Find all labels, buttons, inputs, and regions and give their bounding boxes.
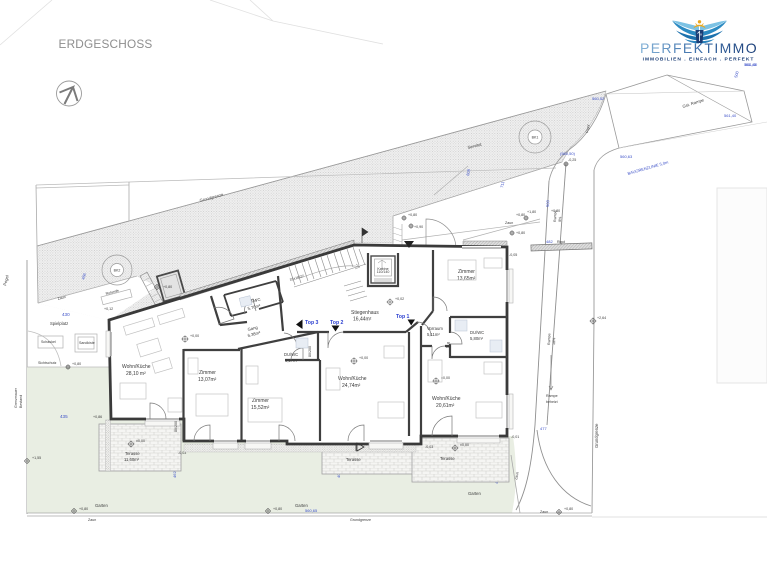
svg-text:561,40: 561,40 (724, 113, 737, 118)
svg-text:Top 3: Top 3 (305, 320, 319, 326)
svg-text:+0,12: +0,12 (104, 307, 113, 311)
svg-text:Vorraum: Vorraum (427, 326, 443, 331)
svg-text:Grenzmauer: Grenzmauer (14, 387, 18, 408)
svg-text:560,52: 560,52 (592, 96, 605, 101)
svg-text:+1,80: +1,80 (527, 210, 536, 214)
svg-text:Terasse: Terasse (346, 457, 361, 462)
svg-text:Schaukel: Schaukel (41, 340, 56, 344)
svg-text:Terasse: Terasse (125, 451, 140, 456)
svg-text:+0,02: +0,02 (395, 297, 404, 301)
svg-text:BK2: BK2 (114, 269, 121, 273)
svg-text:+0,80: +0,80 (516, 231, 525, 235)
svg-text:±0,00: ±0,00 (136, 439, 145, 443)
svg-text:IMMOBILIEN . EINFACH . PER: IMMOBILIEN . EINFACH . PERFEKT (643, 57, 755, 63)
svg-text:+0,80: +0,80 (72, 362, 81, 366)
svg-text:-0,05: -0,05 (509, 253, 517, 257)
svg-text:Sichtschutz: Sichtschutz (38, 361, 57, 365)
svg-text:561,40: 561,40 (744, 62, 757, 67)
svg-text:+1,55: +1,55 (32, 456, 41, 460)
svg-text:560,63: 560,63 (620, 154, 633, 159)
svg-text:+0,90: +0,90 (414, 225, 423, 229)
svg-text:Zaun: Zaun (505, 221, 513, 225)
svg-text:+0,86: +0,86 (93, 415, 102, 419)
svg-text:Rampe: Rampe (547, 333, 551, 345)
svg-text:Garten: Garten (95, 503, 108, 508)
svg-text:-0,03: -0,03 (425, 445, 433, 449)
svg-text:PERFEKTIMMO: PERFEKTIMMO (640, 40, 758, 56)
svg-text:+0,80: +0,80 (273, 507, 282, 511)
svg-text:Rigol: Rigol (557, 240, 565, 244)
svg-text:462: 462 (172, 471, 177, 478)
svg-text:-0,25: -0,25 (568, 158, 576, 162)
svg-text:Spielplatz: Spielplatz (50, 321, 68, 326)
svg-text:+2,64: +2,64 (597, 316, 606, 320)
svg-text:DU/WC: DU/WC (470, 330, 484, 335)
svg-text:5,11m²: 5,11m² (427, 332, 440, 337)
svg-text:+0,80: +0,80 (516, 213, 525, 217)
svg-text:500: 500 (545, 199, 550, 207)
svg-text:-0,01: -0,01 (511, 435, 519, 439)
svg-text:+0,00: +0,00 (359, 356, 368, 360)
svg-text:+0,80: +0,80 (551, 209, 560, 213)
svg-text:Sandkiste: Sandkiste (79, 341, 95, 345)
svg-text:Zimmer: Zimmer (199, 370, 216, 376)
svg-text:Wohn/Küche: Wohn/Küche (122, 364, 151, 370)
svg-text:Top 1: Top 1 (396, 314, 410, 320)
svg-text:Wohn/Küche: Wohn/Küche (338, 376, 367, 382)
svg-text:Grundgrenze: Grundgrenze (350, 518, 371, 522)
svg-text:(560,50): (560,50) (560, 151, 576, 156)
svg-text:28,10 m²: 28,10 m² (126, 371, 146, 377)
svg-text:482: 482 (546, 239, 553, 244)
svg-text:16,44m²: 16,44m² (353, 317, 372, 323)
svg-text:Grundgrenze: Grundgrenze (594, 423, 599, 448)
svg-text:Zimmer: Zimmer (458, 269, 475, 275)
svg-text:DU/WC: DU/WC (284, 352, 298, 357)
svg-text:11,60m²: 11,60m² (124, 457, 140, 462)
svg-text:+0,80: +0,80 (163, 285, 172, 289)
svg-text:24,74m²: 24,74m² (342, 383, 361, 389)
svg-text:435: 435 (60, 414, 68, 419)
svg-text:430: 430 (62, 312, 70, 317)
svg-text:BK1: BK1 (532, 136, 539, 140)
svg-text:6,27m²: 6,27m² (285, 358, 299, 363)
svg-text:ERDGESCHOSS: ERDGESCHOSS (59, 37, 153, 51)
svg-text:beheizt: beheizt (546, 400, 558, 404)
svg-text:Top 2: Top 2 (330, 320, 344, 326)
svg-text:+0,80: +0,80 (564, 507, 573, 511)
svg-text:+0,80: +0,80 (408, 213, 417, 217)
svg-text:80/200: 80/200 (308, 346, 312, 357)
svg-text:Wohn/Küche: Wohn/Küche (432, 396, 461, 402)
svg-text:200: 200 (446, 345, 451, 349)
svg-text:Zaun: Zaun (88, 518, 96, 522)
svg-text:18%: 18% (552, 337, 556, 345)
svg-text:80/200: 80/200 (174, 421, 178, 432)
svg-text:5,80m²: 5,80m² (470, 336, 484, 341)
svg-text:20,61m²: 20,61m² (436, 403, 455, 409)
svg-text:15,52m²: 15,52m² (251, 405, 270, 411)
svg-text:Stiegenhaus: Stiegenhaus (351, 310, 379, 316)
svg-text:13,07m²: 13,07m² (198, 377, 217, 383)
svg-text:Zimmer: Zimmer (252, 398, 269, 404)
svg-text:Garten: Garten (468, 491, 481, 496)
svg-text:+0,80: +0,80 (79, 507, 88, 511)
svg-text:Zaun: Zaun (540, 510, 548, 514)
svg-text:±0,00: ±0,00 (460, 443, 469, 447)
svg-text:+0,00: +0,00 (190, 334, 199, 338)
svg-text:Terasse: Terasse (440, 456, 455, 461)
svg-text:110/140: 110/140 (377, 270, 390, 274)
svg-text:477: 477 (540, 426, 547, 431)
svg-text:9%: 9% (558, 216, 562, 222)
svg-text:13,65m²: 13,65m² (457, 276, 476, 282)
svg-text:560,65: 560,65 (305, 508, 318, 513)
svg-text:Rampe: Rampe (546, 394, 558, 398)
svg-text:Bestand: Bestand (19, 395, 23, 408)
